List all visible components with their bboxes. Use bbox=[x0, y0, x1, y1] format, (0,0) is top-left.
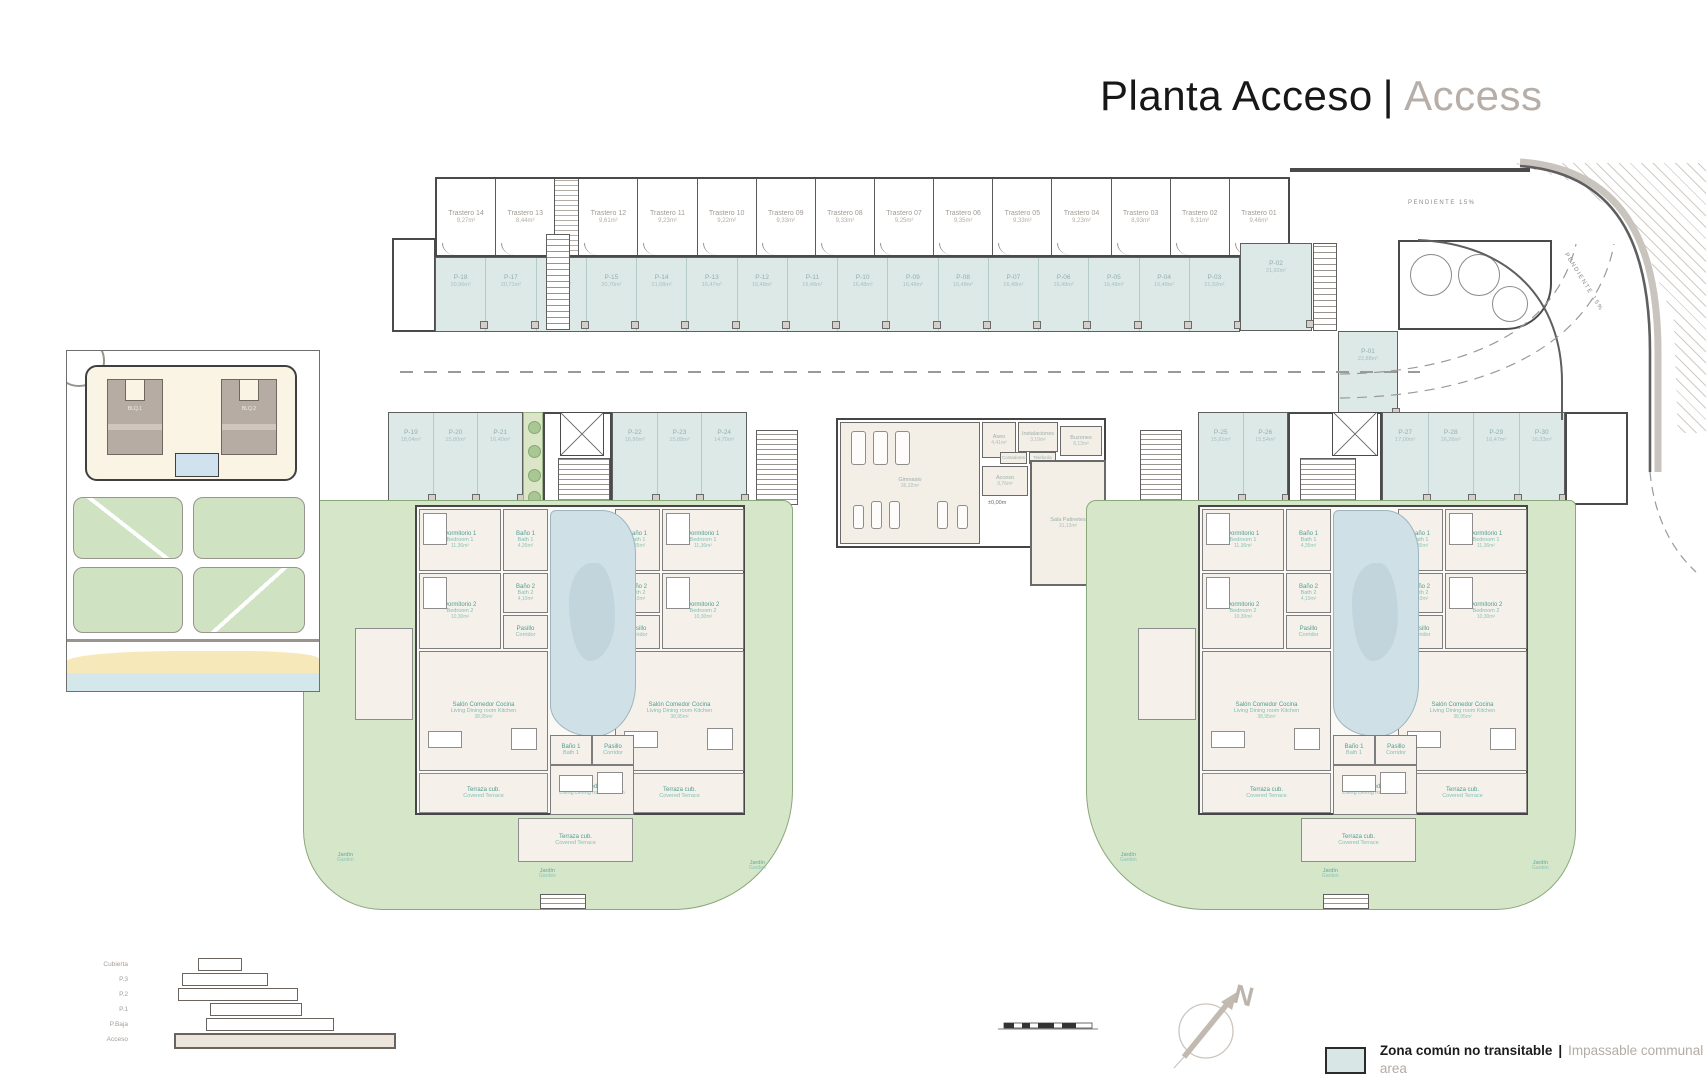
section-level-label: P.Baja bbox=[78, 1021, 128, 1028]
access-lobby: Acceso9,76m² bbox=[982, 466, 1028, 496]
section-level-label: P.3 bbox=[78, 976, 128, 983]
parking-stall: P-2615,54m² bbox=[1244, 413, 1288, 504]
parking-stall: P-0616,48m² bbox=[1039, 258, 1089, 331]
covered-terrace-right: Terraza cub.Covered Terrace bbox=[1398, 773, 1527, 813]
bedroom-1: Dormitorio 1Bedroom 111,36m² bbox=[419, 509, 501, 571]
garden-label: JardínGarden bbox=[1532, 860, 1549, 872]
parking-stall: P-1016,48m² bbox=[838, 258, 888, 331]
storage-cell: Trastero 029,31m² bbox=[1171, 179, 1230, 255]
building-footprint-2: BLQ.2 bbox=[221, 379, 277, 455]
parking-stall: P-1216,48m² bbox=[738, 258, 788, 331]
section-key-row: Acceso bbox=[78, 1033, 358, 1047]
parking-row-mid-right: P-2515,91m²P-2615,54m² bbox=[1198, 412, 1288, 505]
bedroom-2: Dormitorio 2Bedroom 210,30m² bbox=[1445, 573, 1527, 649]
tank-circle bbox=[1458, 254, 1500, 296]
title-english: Access bbox=[1404, 72, 1542, 119]
section-level-box bbox=[206, 1018, 334, 1031]
section-level-box bbox=[198, 958, 242, 971]
storage-cell: Trastero 109,22m² bbox=[698, 179, 757, 255]
curved-stair-right bbox=[1140, 430, 1182, 505]
section-level-label: Acceso bbox=[78, 1036, 128, 1043]
garden-label: JardínGarden bbox=[749, 860, 766, 872]
level-mark: ±0,00m bbox=[988, 500, 1006, 506]
storage-cell: Trastero 119,23m² bbox=[638, 179, 697, 255]
section-key-row: P.2 bbox=[78, 988, 358, 1002]
corridor: PasilloCorridor bbox=[1286, 615, 1331, 649]
parking-stall: P-2015,80m² bbox=[434, 413, 479, 504]
bathroom-1: Baño 1Bath 14,35m² bbox=[1286, 509, 1331, 571]
storage-cell: Trastero 089,33m² bbox=[816, 179, 875, 255]
parking-stall: P-1116,48m² bbox=[788, 258, 838, 331]
corridor: PasilloCorridor bbox=[503, 615, 548, 649]
living-room-left: Salón Comedor CocinaLiving Dining room K… bbox=[419, 651, 548, 771]
section-level-label: Cubierta bbox=[78, 961, 128, 968]
parking-stall: P-1720,71m² bbox=[486, 258, 536, 331]
storage-cell: Trastero 129,61m² bbox=[579, 179, 638, 255]
legend-swatch bbox=[1325, 1047, 1366, 1074]
bedroom-2: Dormitorio 2Bedroom 210,30m² bbox=[662, 573, 744, 649]
parking-stall: P-1820,96m² bbox=[436, 258, 486, 331]
garden-stair bbox=[540, 894, 586, 909]
section-level-box bbox=[210, 1003, 302, 1016]
elevator-left bbox=[560, 412, 604, 456]
park-block bbox=[193, 567, 305, 633]
legend-text: Zona común no transitable|Impassable com… bbox=[1380, 1042, 1706, 1078]
bedroom-1: Dormitorio 1Bedroom 111,36m² bbox=[662, 509, 744, 571]
bathroom-2: Baño 2Bath 24,10m² bbox=[503, 573, 548, 613]
meters-closet: Contadores bbox=[1000, 452, 1027, 464]
parking-stall: P-2816,26m² bbox=[1429, 413, 1475, 504]
bedroom-1: Dormitorio 1Bedroom 111,36m² bbox=[1445, 509, 1527, 571]
section-level-box bbox=[182, 973, 268, 986]
park-block bbox=[73, 567, 183, 633]
storage-cell: Trastero 099,33m² bbox=[757, 179, 816, 255]
gym-room: Gimnasio 36,32m² bbox=[840, 422, 980, 544]
ramp-slope-label-curved: PENDIENTE 15% bbox=[1563, 252, 1604, 312]
section-level-box bbox=[174, 1033, 396, 1049]
parking-stall: P-2414,70m² bbox=[702, 413, 746, 504]
park-block bbox=[193, 497, 305, 559]
parking-stall: P-0916,48m² bbox=[888, 258, 938, 331]
section-level-label: P.2 bbox=[78, 991, 128, 998]
sea bbox=[67, 673, 319, 691]
bedroom-1: Dormitorio 1Bedroom 111,36m² bbox=[1202, 509, 1284, 571]
garage-left-stub bbox=[392, 238, 436, 332]
parking-stall: P-2216,90m² bbox=[613, 413, 658, 504]
driveway-centerline bbox=[400, 371, 1420, 373]
section-key-row: P.3 bbox=[78, 973, 358, 987]
garden-label: JardínGarden bbox=[1120, 852, 1137, 864]
tank-circle bbox=[1492, 286, 1528, 322]
section-key-row: P.1 bbox=[78, 1003, 358, 1017]
elevator-right bbox=[1332, 412, 1378, 456]
corridor-center: PasilloCorridor bbox=[1375, 735, 1417, 765]
covered-terrace-center: Terraza cub.Covered Terrace bbox=[1301, 818, 1416, 862]
installations-room bbox=[1398, 240, 1552, 330]
north-compass: N bbox=[1174, 979, 1257, 1068]
section-key-row: P.Baja bbox=[78, 1018, 358, 1032]
parking-row-mid-left2: P-2216,90m²P-2315,88m²P-2414,70m² bbox=[612, 412, 747, 505]
patio-lightwell bbox=[1333, 510, 1419, 737]
parking-stall: P-3016,33m² bbox=[1520, 413, 1565, 504]
ramp-slope-label: PENDIENTE 15% bbox=[1408, 200, 1476, 206]
garden-label: JardínGarden bbox=[1322, 868, 1339, 880]
garage-stair-up bbox=[546, 234, 570, 330]
parking-stall: P-1918,04m² bbox=[389, 413, 434, 504]
park-block bbox=[73, 497, 183, 559]
storage-cell: Trastero 069,35m² bbox=[934, 179, 993, 255]
site-location-map: BLQ.1 BLQ.2 bbox=[66, 350, 320, 692]
storage-cell: Trastero 038,93m² bbox=[1112, 179, 1171, 255]
living-room-center: Salón Comedor CocinaLiving Dining room K… bbox=[1333, 765, 1417, 815]
parking-stall: P-1520,70m² bbox=[587, 258, 637, 331]
page-title: Planta Acceso|Access bbox=[1100, 72, 1660, 120]
garden-stair bbox=[1323, 894, 1369, 909]
bedroom-2: Dormitorio 2Bedroom 210,30m² bbox=[419, 573, 501, 649]
building-footprint-1: BLQ.1 bbox=[107, 379, 163, 455]
covered-terrace-right: Terraza cub.Covered Terrace bbox=[615, 773, 744, 813]
apartment-block-right: Dormitorio 1Bedroom 111,36m² Baño 1Bath … bbox=[1086, 500, 1576, 915]
mailboxes-room: Buzones8,13m² bbox=[1060, 426, 1102, 456]
ramp-stair bbox=[1313, 243, 1337, 331]
scale-bar bbox=[998, 1023, 1098, 1029]
ramp-top-wall bbox=[1290, 168, 1530, 172]
floor-plan-canvas: Planta Acceso|Access Trastero 149,27m²Tr… bbox=[0, 0, 1706, 1080]
parking-stall: P-2315,88m² bbox=[658, 413, 703, 504]
bathroom-1: Baño 1Bath 14,35m² bbox=[503, 509, 548, 571]
stair-left bbox=[558, 458, 610, 505]
legend: Zona común no transitable|Impassable com… bbox=[1325, 1042, 1706, 1078]
side-terrace-left bbox=[1138, 628, 1196, 720]
pool bbox=[175, 453, 219, 477]
covered-terrace-left: Terraza cub.Covered Terrace bbox=[419, 773, 548, 813]
living-room-center: Salón Comedor CocinaLiving Dining room K… bbox=[550, 765, 634, 815]
section-level-key: CubiertaP.3P.2P.1P.BajaAcceso bbox=[78, 958, 358, 1062]
title-separator: | bbox=[1383, 72, 1394, 119]
parking-stall: P-2116,40m² bbox=[478, 413, 522, 504]
storage-room-right bbox=[1565, 412, 1628, 505]
garden-label: JardínGarden bbox=[539, 868, 556, 880]
curved-stair-left bbox=[756, 430, 798, 505]
storage-cell: Trastero 079,25m² bbox=[875, 179, 934, 255]
parking-stall: P-0321,92m² bbox=[1190, 258, 1239, 331]
covered-terrace-left: Terraza cub.Covered Terrace bbox=[1202, 773, 1331, 813]
section-level-label: P.1 bbox=[78, 1006, 128, 1013]
parking-stall: P-2515,91m² bbox=[1199, 413, 1244, 504]
section-level-box bbox=[178, 988, 298, 1001]
apartment-building: Dormitorio 1Bedroom 111,36m² Baño 1Bath … bbox=[1198, 505, 1528, 815]
parking-stall-p01: P-01 22,88m² bbox=[1338, 331, 1398, 419]
patio-lightwell bbox=[550, 510, 636, 737]
storage-cell: Trastero 059,33m² bbox=[993, 179, 1052, 255]
svg-text:N: N bbox=[1231, 979, 1257, 1013]
site-plot: BLQ.1 BLQ.2 bbox=[85, 365, 297, 481]
parking-row-mid-right2: P-2717,00m²P-2816,26m²P-2916,47m²P-3016,… bbox=[1382, 412, 1565, 505]
storage-cell: Trastero 049,23m² bbox=[1052, 179, 1111, 255]
storage-cell: Trastero 149,27m² bbox=[437, 179, 496, 255]
covered-terrace-center: Terraza cub.Covered Terrace bbox=[518, 818, 633, 862]
promenade-road bbox=[67, 639, 319, 642]
parking-stall: P-2916,47m² bbox=[1474, 413, 1520, 504]
planter-strip bbox=[523, 412, 543, 505]
bathroom-2: Baño 2Bath 24,10m² bbox=[1286, 573, 1331, 613]
parking-stall: P-2717,00m² bbox=[1383, 413, 1429, 504]
apartment-building: Dormitorio 1Bedroom 111,36m² Baño 1Bath … bbox=[415, 505, 745, 815]
title-spanish: Planta Acceso bbox=[1100, 72, 1373, 119]
parking-stall: P-0416,48m² bbox=[1140, 258, 1190, 331]
parking-stall: P-1421,68m² bbox=[637, 258, 687, 331]
side-terrace-left bbox=[355, 628, 413, 720]
corridor-center: PasilloCorridor bbox=[592, 735, 634, 765]
bathroom-1-center: Baño 1Bath 1 bbox=[1333, 735, 1375, 765]
parking-stall: P-0816,48m² bbox=[939, 258, 989, 331]
tank-circle bbox=[1410, 254, 1452, 296]
stair-right bbox=[1300, 458, 1356, 505]
bedroom-2: Dormitorio 2Bedroom 210,30m² bbox=[1202, 573, 1284, 649]
section-key-row: Cubierta bbox=[78, 958, 358, 972]
parking-stall: P-0716,48m² bbox=[989, 258, 1039, 331]
garden-label: JardínGarden bbox=[337, 852, 354, 864]
living-room-left: Salón Comedor CocinaLiving Dining room K… bbox=[1202, 651, 1331, 771]
parking-stall: P-0516,48m² bbox=[1089, 258, 1139, 331]
parking-stall-p02: P-02 21,92m² bbox=[1240, 243, 1312, 331]
bathroom-1-center: Baño 1Bath 1 bbox=[550, 735, 592, 765]
apartment-block-left: Dormitorio 1Bedroom 111,36m² Baño 1Bath … bbox=[303, 500, 793, 915]
boundary-dashed bbox=[1650, 472, 1696, 572]
parking-stall: P-1316,47m² bbox=[687, 258, 737, 331]
installations-closet: Instalaciones3,19m² bbox=[1018, 422, 1058, 452]
parking-row-mid-left: P-1918,04m²P-2015,80m²P-2116,40m² bbox=[388, 412, 523, 505]
